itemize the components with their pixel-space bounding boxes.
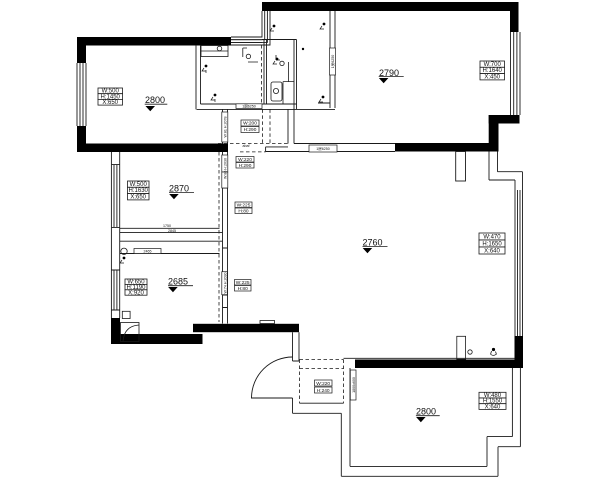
svg-text:H:290: H:290 bbox=[244, 127, 257, 133]
svg-text:1房6250: 1房6250 bbox=[330, 55, 335, 69]
svg-text:H:80: H:80 bbox=[238, 209, 248, 215]
svg-text:2845: 2845 bbox=[168, 229, 176, 233]
svg-text:W:200: W:200 bbox=[243, 121, 257, 127]
svg-text:W:500: W:500 bbox=[130, 182, 148, 188]
svg-text:2870: 2870 bbox=[169, 184, 189, 194]
svg-text:X:640: X:640 bbox=[485, 404, 501, 410]
svg-text:W:470: W:470 bbox=[483, 235, 501, 241]
svg-text:W:81 H:2078: W:81 H:2078 bbox=[224, 117, 228, 138]
svg-text:X:650: X:650 bbox=[130, 195, 146, 201]
svg-text:2800: 2800 bbox=[145, 95, 165, 105]
svg-text:2800: 2800 bbox=[416, 407, 436, 417]
svg-text:X:450: X:450 bbox=[484, 75, 500, 81]
svg-text:2465: 2465 bbox=[144, 249, 152, 253]
svg-text:2685: 2685 bbox=[168, 277, 188, 287]
svg-text:1750: 1750 bbox=[163, 224, 171, 228]
svg-text:W:700: W:700 bbox=[484, 62, 502, 68]
svg-text:H:1640: H:1640 bbox=[483, 68, 503, 74]
svg-text:W:80 H:2030: W:80 H:2030 bbox=[224, 158, 228, 179]
svg-text:W:225: W:225 bbox=[237, 203, 251, 209]
svg-text:W:74 H:2030: W:74 H:2030 bbox=[223, 273, 227, 294]
svg-text:1800x600: 1800x600 bbox=[352, 377, 356, 393]
svg-text:W:220: W:220 bbox=[316, 381, 330, 387]
svg-text:1厨6250: 1厨6250 bbox=[242, 104, 256, 109]
svg-text:1房6250: 1房6250 bbox=[316, 146, 330, 151]
svg-text:H:1650: H:1650 bbox=[482, 242, 502, 248]
svg-text:W:220: W:220 bbox=[238, 157, 252, 163]
svg-text:X:650: X:650 bbox=[102, 100, 118, 106]
svg-text:X:920: X:920 bbox=[128, 290, 144, 296]
svg-text:abaf: abaf bbox=[243, 144, 250, 148]
svg-text:H:290: H:290 bbox=[239, 163, 252, 169]
svg-text:X:640: X:640 bbox=[484, 249, 500, 255]
svg-text:W:225: W:225 bbox=[236, 280, 250, 286]
svg-text:H:1630: H:1630 bbox=[129, 188, 149, 194]
svg-text:H:240: H:240 bbox=[317, 388, 330, 394]
svg-text:H:80: H:80 bbox=[238, 286, 248, 292]
